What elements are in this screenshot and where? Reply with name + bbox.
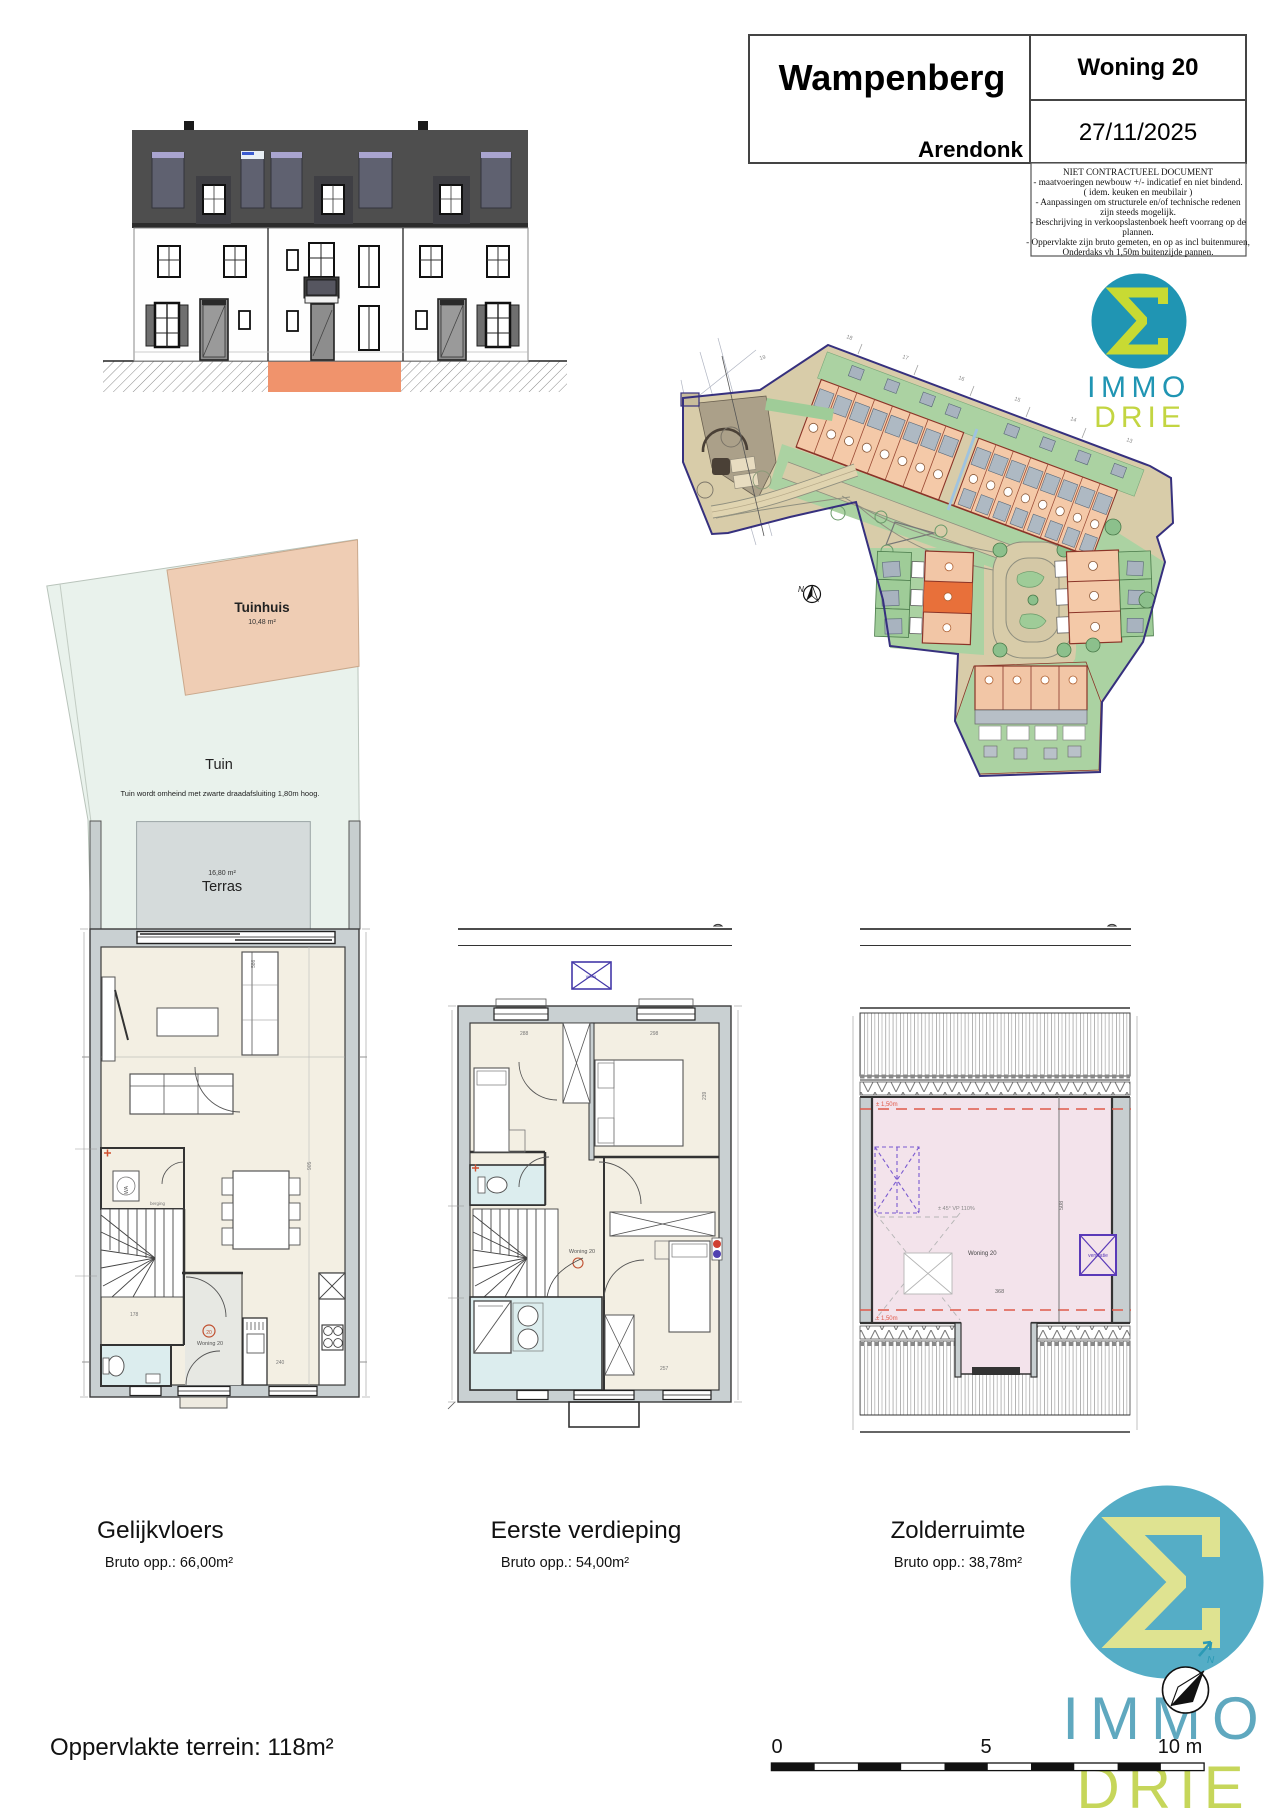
- svg-text:Tuinhuis: Tuinhuis: [234, 600, 289, 615]
- svg-text:Woning 20: Woning 20: [968, 1251, 997, 1257]
- svg-text:Onderdaks vh 1,50m buitenzijde: Onderdaks vh 1,50m buitenzijde pannen.: [1062, 247, 1213, 257]
- svg-text:ventilatie: ventilatie: [1088, 1253, 1108, 1259]
- svg-text:Gelijkvloers: Gelijkvloers: [97, 1517, 224, 1544]
- svg-text:Arendonk: Arendonk: [918, 137, 1023, 162]
- svg-text:905: 905: [307, 1161, 313, 1170]
- svg-text:16: 16: [957, 375, 965, 383]
- svg-text:N: N: [1207, 1655, 1215, 1666]
- svg-text:Eerste verdieping: Eerste verdieping: [491, 1517, 682, 1544]
- svg-text:17: 17: [901, 354, 909, 362]
- svg-text:18: 18: [845, 334, 853, 342]
- svg-text:239: 239: [702, 1091, 708, 1100]
- svg-text:368: 368: [995, 1289, 1004, 1295]
- svg-text:( idem. keuken en meubilair ): ( idem. keuken en meubilair ): [1084, 187, 1193, 197]
- svg-text:178: 178: [130, 1312, 139, 1318]
- svg-text:WA: WA: [124, 1185, 130, 1194]
- svg-text:14: 14: [1069, 416, 1077, 424]
- svg-text:Bruto opp.: 54,00m²: Bruto opp.: 54,00m²: [501, 1555, 629, 1571]
- svg-text:velux: velux: [586, 974, 597, 979]
- svg-text:N: N: [798, 585, 804, 594]
- svg-text:plannen.: plannen.: [1122, 227, 1153, 237]
- svg-text:± 1,50m: ± 1,50m: [876, 1102, 898, 1108]
- svg-text:20: 20: [206, 1330, 212, 1336]
- svg-text:Tuin wordt omheind met zwarte: Tuin wordt omheind met zwarte draadafslu…: [121, 789, 320, 798]
- svg-text:0: 0: [771, 1736, 782, 1758]
- svg-text:16,80 m²: 16,80 m²: [208, 870, 236, 877]
- svg-text:15: 15: [1013, 396, 1021, 404]
- svg-text:240: 240: [276, 1360, 285, 1366]
- svg-text:19: 19: [759, 355, 766, 362]
- svg-text:berging: berging: [150, 1201, 166, 1206]
- svg-text:298: 298: [650, 1031, 659, 1037]
- svg-text:10 m: 10 m: [1158, 1736, 1202, 1758]
- svg-text:DRIE: DRIE: [1094, 401, 1186, 434]
- svg-text:10,48 m²: 10,48 m²: [248, 619, 276, 626]
- svg-text:508: 508: [1059, 1201, 1065, 1210]
- svg-text:Tuin: Tuin: [205, 757, 233, 773]
- svg-text:Terras: Terras: [202, 879, 242, 895]
- svg-text:± 45° VP 110%: ± 45° VP 110%: [938, 1206, 975, 1212]
- svg-text:Woning 20: Woning 20: [197, 1341, 223, 1347]
- svg-text:- Beschrijving in verkoopslast: - Beschrijving in verkoopslastenboek hee…: [1030, 217, 1246, 227]
- svg-text:- Aanpassingen om structurele: - Aanpassingen om structurele en/of tech…: [1035, 197, 1241, 207]
- svg-text:27/11/2025: 27/11/2025: [1079, 119, 1197, 146]
- svg-text:± 1,50m: ± 1,50m: [876, 1316, 898, 1322]
- svg-text:Bruto opp.: 66,00m²: Bruto opp.: 66,00m²: [105, 1555, 233, 1571]
- svg-text:zijn steeds mogelijk.: zijn steeds mogelijk.: [1100, 207, 1176, 217]
- svg-text:5: 5: [980, 1736, 991, 1758]
- svg-text:Woning 20: Woning 20: [569, 1249, 595, 1255]
- svg-text:IMMO: IMMO: [1087, 371, 1191, 404]
- svg-text:- maatvoeringen newbouw +/- in: - maatvoeringen newbouw +/- indicatief e…: [1033, 177, 1242, 187]
- svg-text:Oppervlakte terrein: 118m²: Oppervlakte terrein: 118m²: [50, 1734, 334, 1761]
- svg-text:- Oppervlakte zijn bruto gemet: - Oppervlakte zijn bruto gemeten, en op …: [1026, 237, 1250, 247]
- svg-text:Wampenberg: Wampenberg: [779, 57, 1006, 98]
- svg-text:Woning 20: Woning 20: [1078, 54, 1199, 81]
- svg-text:Zolderruimte: Zolderruimte: [891, 1517, 1026, 1544]
- svg-text:586: 586: [251, 959, 257, 968]
- svg-text:NIET CONTRACTUEEL DOCUMENT: NIET CONTRACTUEEL DOCUMENT: [1063, 167, 1213, 177]
- svg-text:257: 257: [660, 1366, 669, 1372]
- svg-text:Bruto opp.: 38,78m²: Bruto opp.: 38,78m²: [894, 1555, 1022, 1571]
- svg-text:288: 288: [520, 1031, 529, 1037]
- svg-text:13: 13: [1125, 437, 1133, 445]
